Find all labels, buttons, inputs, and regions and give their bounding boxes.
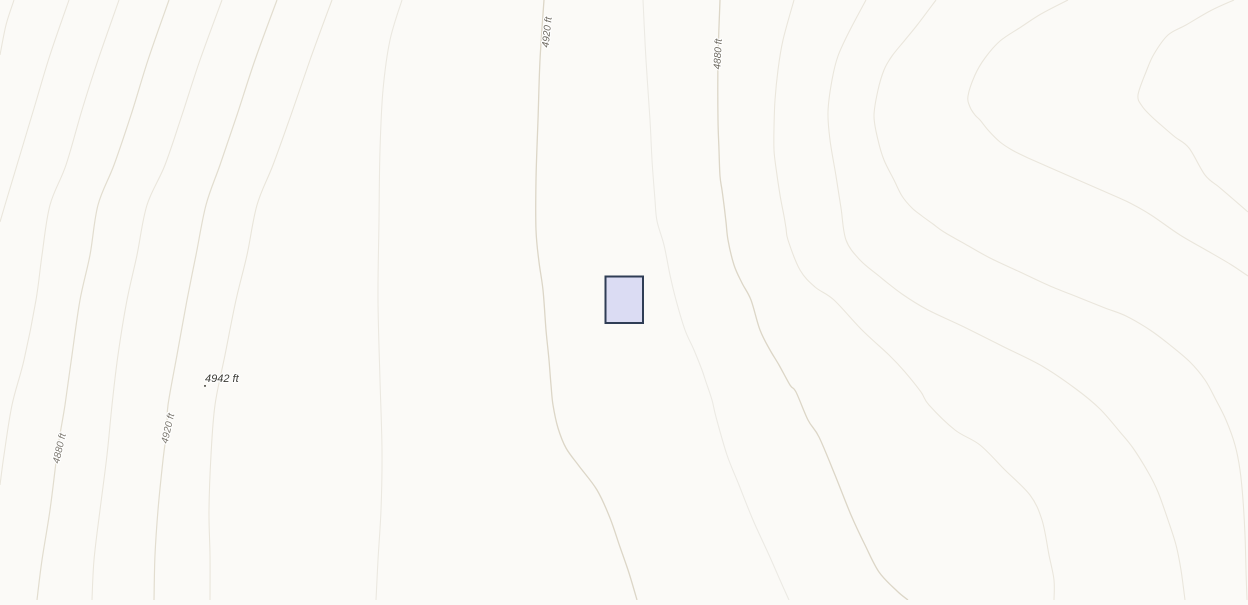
svg-text:4942 ft: 4942 ft bbox=[205, 373, 240, 385]
svg-text:4880 ft: 4880 ft bbox=[712, 37, 725, 69]
